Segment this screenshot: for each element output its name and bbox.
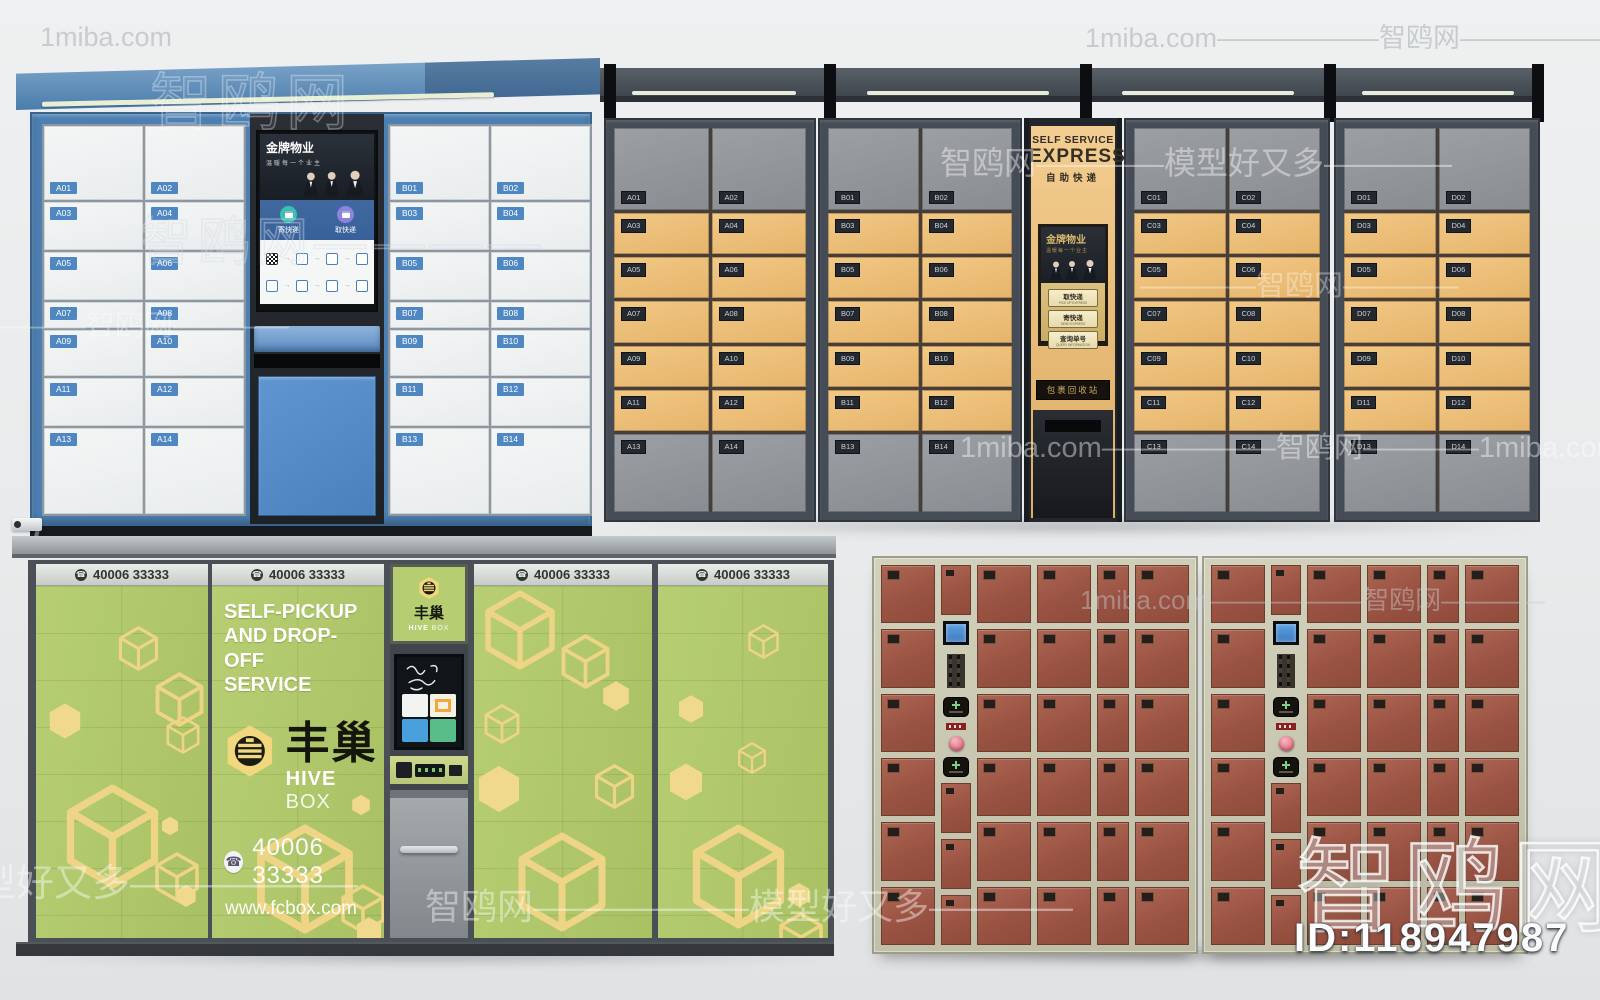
locker-door[interactable] [1427,565,1458,623]
locker-grid-b: B01B02B03B04B05B06B07B08B09B10B11B12B13B… [388,124,592,516]
locker-door[interactable]: C08 [1229,301,1321,342]
door-number-badge: A06 [719,263,744,277]
arrow-icon: → [284,282,291,289]
locker-door[interactable]: B05 [828,257,919,298]
locker-door[interactable]: B07 [390,302,489,328]
locker-cabinet-left [872,556,1198,954]
locker-door[interactable] [1465,629,1519,687]
locker-door[interactable]: B01 [390,126,489,200]
locker-grid [1211,565,1519,945]
locker-door[interactable]: C07 [1134,301,1226,342]
locker-door[interactable] [1465,694,1519,752]
locker-door[interactable] [1427,758,1458,816]
locker-door[interactable]: D05 [1344,257,1436,298]
locker-door[interactable] [1271,565,1301,615]
touchscreen[interactable]: 金牌物业 温暖每一个业主 取快递 PICK UP EXPRESS 寄快递 [1038,224,1108,346]
door-number-badge: B10 [929,352,954,366]
door-number-badge: B06 [929,263,954,277]
instruction-panel: → → → → → → [260,240,374,304]
door-number-badge: A04 [719,219,744,233]
step-icon [266,280,278,292]
locker-door[interactable] [1211,887,1265,945]
panel-doors[interactable] [474,586,652,938]
door-number-badge: D12 [1446,396,1472,410]
locker-door[interactable]: C09 [1134,346,1226,387]
locker-door[interactable]: B10 [922,346,1013,387]
locker-door[interactable] [977,694,1031,752]
touchscreen[interactable]: 金牌物业 温暖每一个业主 寄快递 取快递 [256,130,378,312]
locker-door[interactable]: B09 [390,330,489,376]
screen-tile[interactable] [402,719,428,742]
card-slot[interactable] [943,757,969,777]
locker-door[interactable] [941,783,971,833]
mini-keypad[interactable] [449,765,462,776]
locker-door[interactable] [1135,887,1189,945]
locker-door[interactable] [1367,887,1421,945]
canopy-roof [832,68,1084,102]
locker-door[interactable]: A08 [712,301,807,342]
locker-door[interactable]: C03 [1134,213,1226,254]
screen-tile[interactable] [402,694,428,717]
canopy-bracket [604,64,616,122]
header-phone-number: 40006 33333 [714,567,790,582]
locker-door[interactable]: B02 [922,128,1013,210]
phone-icon: ☎ [251,569,263,581]
door-number-badge: A03 [621,219,646,233]
door-number-badge: D03 [1351,219,1377,233]
locker-door[interactable]: A02 [712,128,807,210]
locker-door[interactable]: D04 [1439,213,1531,254]
locker-door[interactable] [1307,822,1361,880]
locker-door[interactable] [881,822,935,880]
locker-door[interactable] [941,565,971,615]
control-console: 丰巢 HIVE BOX [390,564,468,938]
locker-door[interactable]: D11 [1344,390,1436,431]
hivebox-logo: 丰巢 HIVE BOX [212,698,384,814]
locker-door[interactable]: A08 [145,302,244,328]
locker-door[interactable] [977,629,1031,687]
locker-door[interactable]: B13 [828,434,919,512]
locker-door[interactable]: D06 [1439,257,1531,298]
door-number-badge: D13 [1351,440,1377,454]
locker-door[interactable] [1097,758,1128,816]
locker-door[interactable] [1211,822,1265,880]
locker-panel-1: ☎ 40006 33333 [36,564,208,938]
door-number-badge: A12 [719,396,744,410]
return-slot[interactable] [1045,420,1101,432]
locker-door[interactable] [941,895,971,945]
locker-door[interactable]: A09 [614,346,709,387]
door-number-badge: A01 [621,191,646,205]
locker-door[interactable]: B12 [491,378,590,426]
locker-door[interactable]: B13 [390,428,489,514]
locker-door[interactable] [1465,565,1519,623]
door-number-badge: B08 [929,307,954,321]
service-line-2: AND DROP-OFF [224,624,374,673]
locker-grid-a: A01A02A03A04A05A06A07A08A09A10A11A12A13A… [42,124,246,516]
step-icon [356,253,368,265]
locker-door[interactable] [1367,565,1421,623]
locker-grid: B01B02B03B04B05B06B07B08B09B10B11B12B13B… [828,128,1012,512]
locker-door[interactable] [881,758,935,816]
locker-door[interactable]: C05 [1134,257,1226,298]
door-number-badge: C04 [1236,219,1262,233]
door-number-badge: C02 [1236,191,1262,205]
watermark-line: 1miba.com——————智鸥网—————— [1085,16,1600,55]
button-label-cn: 取快递 [1049,291,1097,301]
screen-title: 金牌物业 [260,134,374,156]
locker-door[interactable] [1211,565,1265,623]
camera-lens-icon [14,521,21,528]
step-icon [326,280,338,292]
locker-door[interactable]: C13 [1134,434,1226,512]
locker-door[interactable]: A12 [712,390,807,431]
bin-handle[interactable] [400,846,458,853]
locker-door[interactable]: B08 [922,301,1013,342]
locker-door[interactable] [1097,887,1128,945]
locker-door[interactable]: B11 [828,390,919,431]
locker-door[interactable] [1097,629,1128,687]
screen-tile[interactable] [430,694,456,717]
call-button[interactable] [949,736,964,751]
door-number-badge: A08 [719,307,744,321]
screen-title: 金牌物业 [1041,227,1105,246]
locker-door[interactable]: B03 [390,202,489,250]
door-number-badge: A03 [50,207,77,220]
locker-door[interactable]: C14 [1229,434,1321,512]
locker-door[interactable] [1271,895,1301,945]
locker-door[interactable]: A06 [712,257,807,298]
locker-door[interactable] [1271,783,1301,833]
locker-door[interactable] [1135,565,1189,623]
locker-door[interactable]: A14 [712,434,807,512]
console-lower-panel [1033,410,1113,518]
door-number-badge: A14 [151,433,178,446]
locker-door[interactable] [1465,758,1519,816]
large-locker-door[interactable] [258,376,376,516]
locker-door[interactable] [1211,629,1265,687]
locker-door[interactable]: A03 [614,213,709,254]
locker-door[interactable]: B01 [828,128,919,210]
door-number-badge: B03 [835,219,860,233]
locker-door[interactable]: C04 [1229,213,1321,254]
touchscreen[interactable] [394,654,464,750]
locker-door[interactable] [881,565,935,623]
locker-door[interactable] [881,887,935,945]
phone-icon: ☎ [224,851,243,873]
pickup-parcel-action[interactable]: 取快递 [335,206,356,235]
door-number-badge: B05 [835,263,860,277]
drop-bin[interactable] [390,790,468,938]
watermark-site: 1miba.com [40,22,172,53]
door-number-badge: C09 [1141,352,1167,366]
door-number-badge: C06 [1236,263,1262,277]
door-number-badge: D11 [1351,396,1376,410]
phone-icon: ☎ [696,569,708,581]
arrow-icon: → [344,255,351,262]
locker-door[interactable] [1307,887,1361,945]
locker-door[interactable]: D14 [1439,434,1531,512]
locker-door[interactable] [1037,694,1091,752]
locker-door[interactable] [977,887,1031,945]
locker-panel-brand: ☎ 40006 33333 SELF-PICKUP AND DROP-OFF S… [212,564,384,938]
staff-photo [294,170,372,200]
locker-door[interactable]: C06 [1229,257,1321,298]
door-number-badge: B01 [835,191,860,205]
locker-door[interactable]: B10 [491,330,590,376]
locker-door[interactable] [977,565,1031,623]
locker-cabinet: ☎ 40006 33333 [28,560,834,944]
locker-door[interactable] [977,758,1031,816]
phone-header-strip: ☎ 40006 33333 [212,564,384,586]
locker-door[interactable]: B04 [491,202,590,250]
control-column [941,565,971,945]
locker-door[interactable] [1097,694,1128,752]
instruction-label [946,723,966,730]
locker-door[interactable]: A12 [145,378,244,426]
screen-banner: 金牌物业 温暖每一个业主 [1041,227,1105,283]
door-number-badge: B04 [929,219,954,233]
screen-button[interactable]: 查询单号 QUERY INFORMATION [1048,331,1098,349]
locker-door[interactable]: A13 [614,434,709,512]
locker-door[interactable]: C10 [1229,346,1321,387]
staff-photo [1043,259,1103,283]
recycle-label: 包裹回收站 [1036,380,1110,400]
parcel-slot[interactable] [254,326,380,352]
light-strip [867,91,1048,95]
locker-door[interactable]: B14 [491,428,590,514]
locker-door[interactable] [1037,629,1091,687]
screen-tiles [402,694,456,742]
locker-door[interactable]: A01 [614,128,709,210]
phone-row: ☎ 40006 33333 [212,814,384,890]
control-console: SELF SERVICE EXPRESS 自助快递 金牌物业 温暖每一个业主 取… [1024,118,1122,522]
locker-door[interactable] [1271,839,1301,889]
locker-door[interactable]: D12 [1439,390,1531,431]
door-number-badge: C11 [1141,396,1166,410]
keypad[interactable] [1274,651,1298,691]
locker-door[interactable]: D07 [1344,301,1436,342]
locker-door[interactable]: D10 [1439,346,1531,387]
locker-door[interactable]: A01 [44,126,143,200]
send-parcel-label: 寄快递 [278,225,299,235]
locker-door[interactable]: D02 [1439,128,1531,210]
qr-scanner[interactable] [396,762,412,778]
locker-door[interactable] [1037,565,1091,623]
canopy-roof [1332,68,1544,102]
button-label-en: PICK UP EXPRESS [1051,301,1094,305]
step-icon [296,280,308,292]
door-number-badge: B13 [835,440,860,454]
service-line-1: SELF-PICKUP [224,600,374,624]
locker-door[interactable] [1135,758,1189,816]
locker-door[interactable] [1465,822,1519,880]
locker-grid: A01A02A03A04A05A06A07A08A09A10A11A12A13A… [614,128,806,512]
locker-door[interactable] [1367,758,1421,816]
slot-opening [254,354,380,368]
locker-door[interactable]: B06 [922,257,1013,298]
scanner-panel [390,756,468,784]
scanner-slot[interactable] [1273,697,1299,717]
door-number-badge: C07 [1141,307,1167,321]
locker-grid [881,565,1189,945]
locker-door[interactable] [1037,758,1091,816]
locker-door[interactable]: B06 [491,252,590,300]
screen-subtitle: 温暖每一个业主 [260,156,374,167]
step-icon [356,280,368,292]
door-number-badge: C13 [1141,440,1167,454]
locker-door[interactable] [881,629,935,687]
door-number-badge: A10 [719,352,744,366]
locker-door[interactable]: C02 [1229,128,1321,210]
locker-door[interactable] [1307,629,1361,687]
locker-door[interactable] [1097,822,1128,880]
locker-door[interactable] [977,822,1031,880]
locker-door[interactable]: A13 [44,428,143,514]
screen-tile[interactable] [430,719,456,742]
locker-door[interactable]: B08 [491,302,590,328]
door-number-badge: B03 [396,207,423,220]
locker-door[interactable] [941,839,971,889]
locker-door[interactable]: A04 [145,202,244,250]
arrow-icon: → [314,282,321,289]
keypad[interactable] [944,651,968,691]
locker-door[interactable]: A11 [44,378,143,426]
locker-door[interactable]: B12 [922,390,1013,431]
scanner-slot[interactable] [943,697,969,717]
pickup-parcel-label: 取快递 [335,225,356,235]
service-line-3: SERVICE [224,673,374,697]
locker-panel-4: ☎ 40006 33333 [658,564,828,938]
screen-button-list: 取快递 PICK UP EXPRESS 寄快递 SEND EXPRESS 查询单… [1041,283,1105,341]
locker-door[interactable] [881,694,935,752]
locker-door[interactable]: A02 [145,126,244,200]
locker-door[interactable] [1037,822,1091,880]
locker-door[interactable]: D08 [1439,301,1531,342]
locker-door[interactable]: A07 [44,302,143,328]
locker-door[interactable] [1307,694,1361,752]
locker-door[interactable]: B11 [390,378,489,426]
console-brand-sign: 丰巢 HIVE BOX [390,564,468,644]
door-number-badge: A04 [151,207,178,220]
door-number-badge: D01 [1351,191,1377,205]
button-label-cn: 查询单号 [1049,333,1097,343]
canopy-bracket [1532,64,1544,122]
card-slot[interactable] [1273,757,1299,777]
locker-door[interactable]: D13 [1344,434,1436,512]
locker-door[interactable] [1211,694,1265,752]
door-number-badge: B04 [497,207,524,220]
locker-door[interactable]: B02 [491,126,590,200]
door-number-badge: D07 [1351,307,1377,321]
locker-door[interactable]: A07 [614,301,709,342]
door-number-badge: B06 [497,257,524,270]
locker-door[interactable] [1367,822,1421,880]
arrow-icon: → [314,255,321,262]
locker-door[interactable] [1135,694,1189,752]
security-camera [12,518,42,531]
cube-decoration [36,586,208,938]
card-slot[interactable] [415,764,445,777]
locker-door[interactable]: D03 [1344,213,1436,254]
send-parcel-action[interactable]: 寄快递 [278,206,299,235]
locker-door[interactable] [1307,758,1361,816]
locker-door[interactable]: D01 [1344,128,1436,210]
locker-door[interactable]: D09 [1344,346,1436,387]
locker-door[interactable]: A06 [145,252,244,300]
phone-header-strip: ☎ 40006 33333 [658,564,828,586]
locker-door[interactable]: A05 [44,252,143,300]
door-number-badge: C10 [1236,352,1262,366]
roof-glass-panel [425,58,600,110]
locker-door[interactable] [1427,887,1458,945]
locker-door[interactable]: B14 [922,434,1013,512]
screen-button[interactable]: 寄快递 SEND EXPRESS [1048,310,1098,328]
locker-door[interactable]: C01 [1134,128,1226,210]
header-phone-number: 40006 33333 [269,567,345,582]
locker-door[interactable] [1135,822,1189,880]
locker-door[interactable]: A04 [712,213,807,254]
locker-door[interactable]: A10 [145,330,244,376]
locker-door[interactable] [1367,629,1421,687]
service-sign: SELF SERVICE EXPRESS 自助快递 [1029,134,1117,184]
door-number-badge: D05 [1351,263,1377,277]
locker-door[interactable]: C11 [1134,390,1226,431]
locker-door[interactable]: B03 [828,213,919,254]
locker-door[interactable] [1427,629,1458,687]
button-label-en: QUERY INFORMATION [1051,343,1094,347]
locker-unit-red [872,556,1528,954]
door-number-badge: B08 [497,307,524,320]
locker-door[interactable] [1097,565,1128,623]
locker-door[interactable]: A03 [44,202,143,250]
door-number-badge: A07 [50,307,77,320]
locker-door[interactable] [1307,565,1361,623]
door-number-badge: D04 [1446,219,1472,233]
locker-door[interactable] [1427,694,1458,752]
panel-doors[interactable] [36,586,208,938]
door-number-badge: D02 [1446,191,1472,205]
locker-door[interactable]: B07 [828,301,919,342]
locker-door[interactable]: A14 [145,428,244,514]
locker-door[interactable]: B09 [828,346,919,387]
pickup-parcel-icon [337,206,354,223]
phone-icon: ☎ [516,569,528,581]
scene: A01A02A03A04A05A06A07A08A09A10A11A12A13A… [0,0,1600,1000]
locker-door[interactable] [1427,822,1458,880]
locker-door[interactable]: A10 [712,346,807,387]
door-number-badge: A02 [719,191,744,205]
locker-door[interactable] [1465,887,1519,945]
locker-door[interactable]: B05 [390,252,489,300]
canopy-roof [600,68,828,102]
screen-button[interactable]: 取快递 PICK UP EXPRESS [1048,289,1098,307]
locker-door[interactable]: B04 [922,213,1013,254]
locker-door[interactable]: A09 [44,330,143,376]
locker-door[interactable]: C12 [1229,390,1321,431]
locker-door[interactable] [1037,887,1091,945]
sign-line-1: SELF SERVICE [1029,134,1117,146]
locker-door[interactable] [1367,694,1421,752]
locker-door[interactable] [1135,629,1189,687]
call-button[interactable] [1279,736,1294,751]
light-strip [1122,91,1295,95]
locker-door[interactable]: A05 [614,257,709,298]
locker-door[interactable] [1211,758,1265,816]
locker-door[interactable]: A11 [614,390,709,431]
panel-doors[interactable] [658,586,828,938]
door-number-badge: B02 [929,191,954,205]
